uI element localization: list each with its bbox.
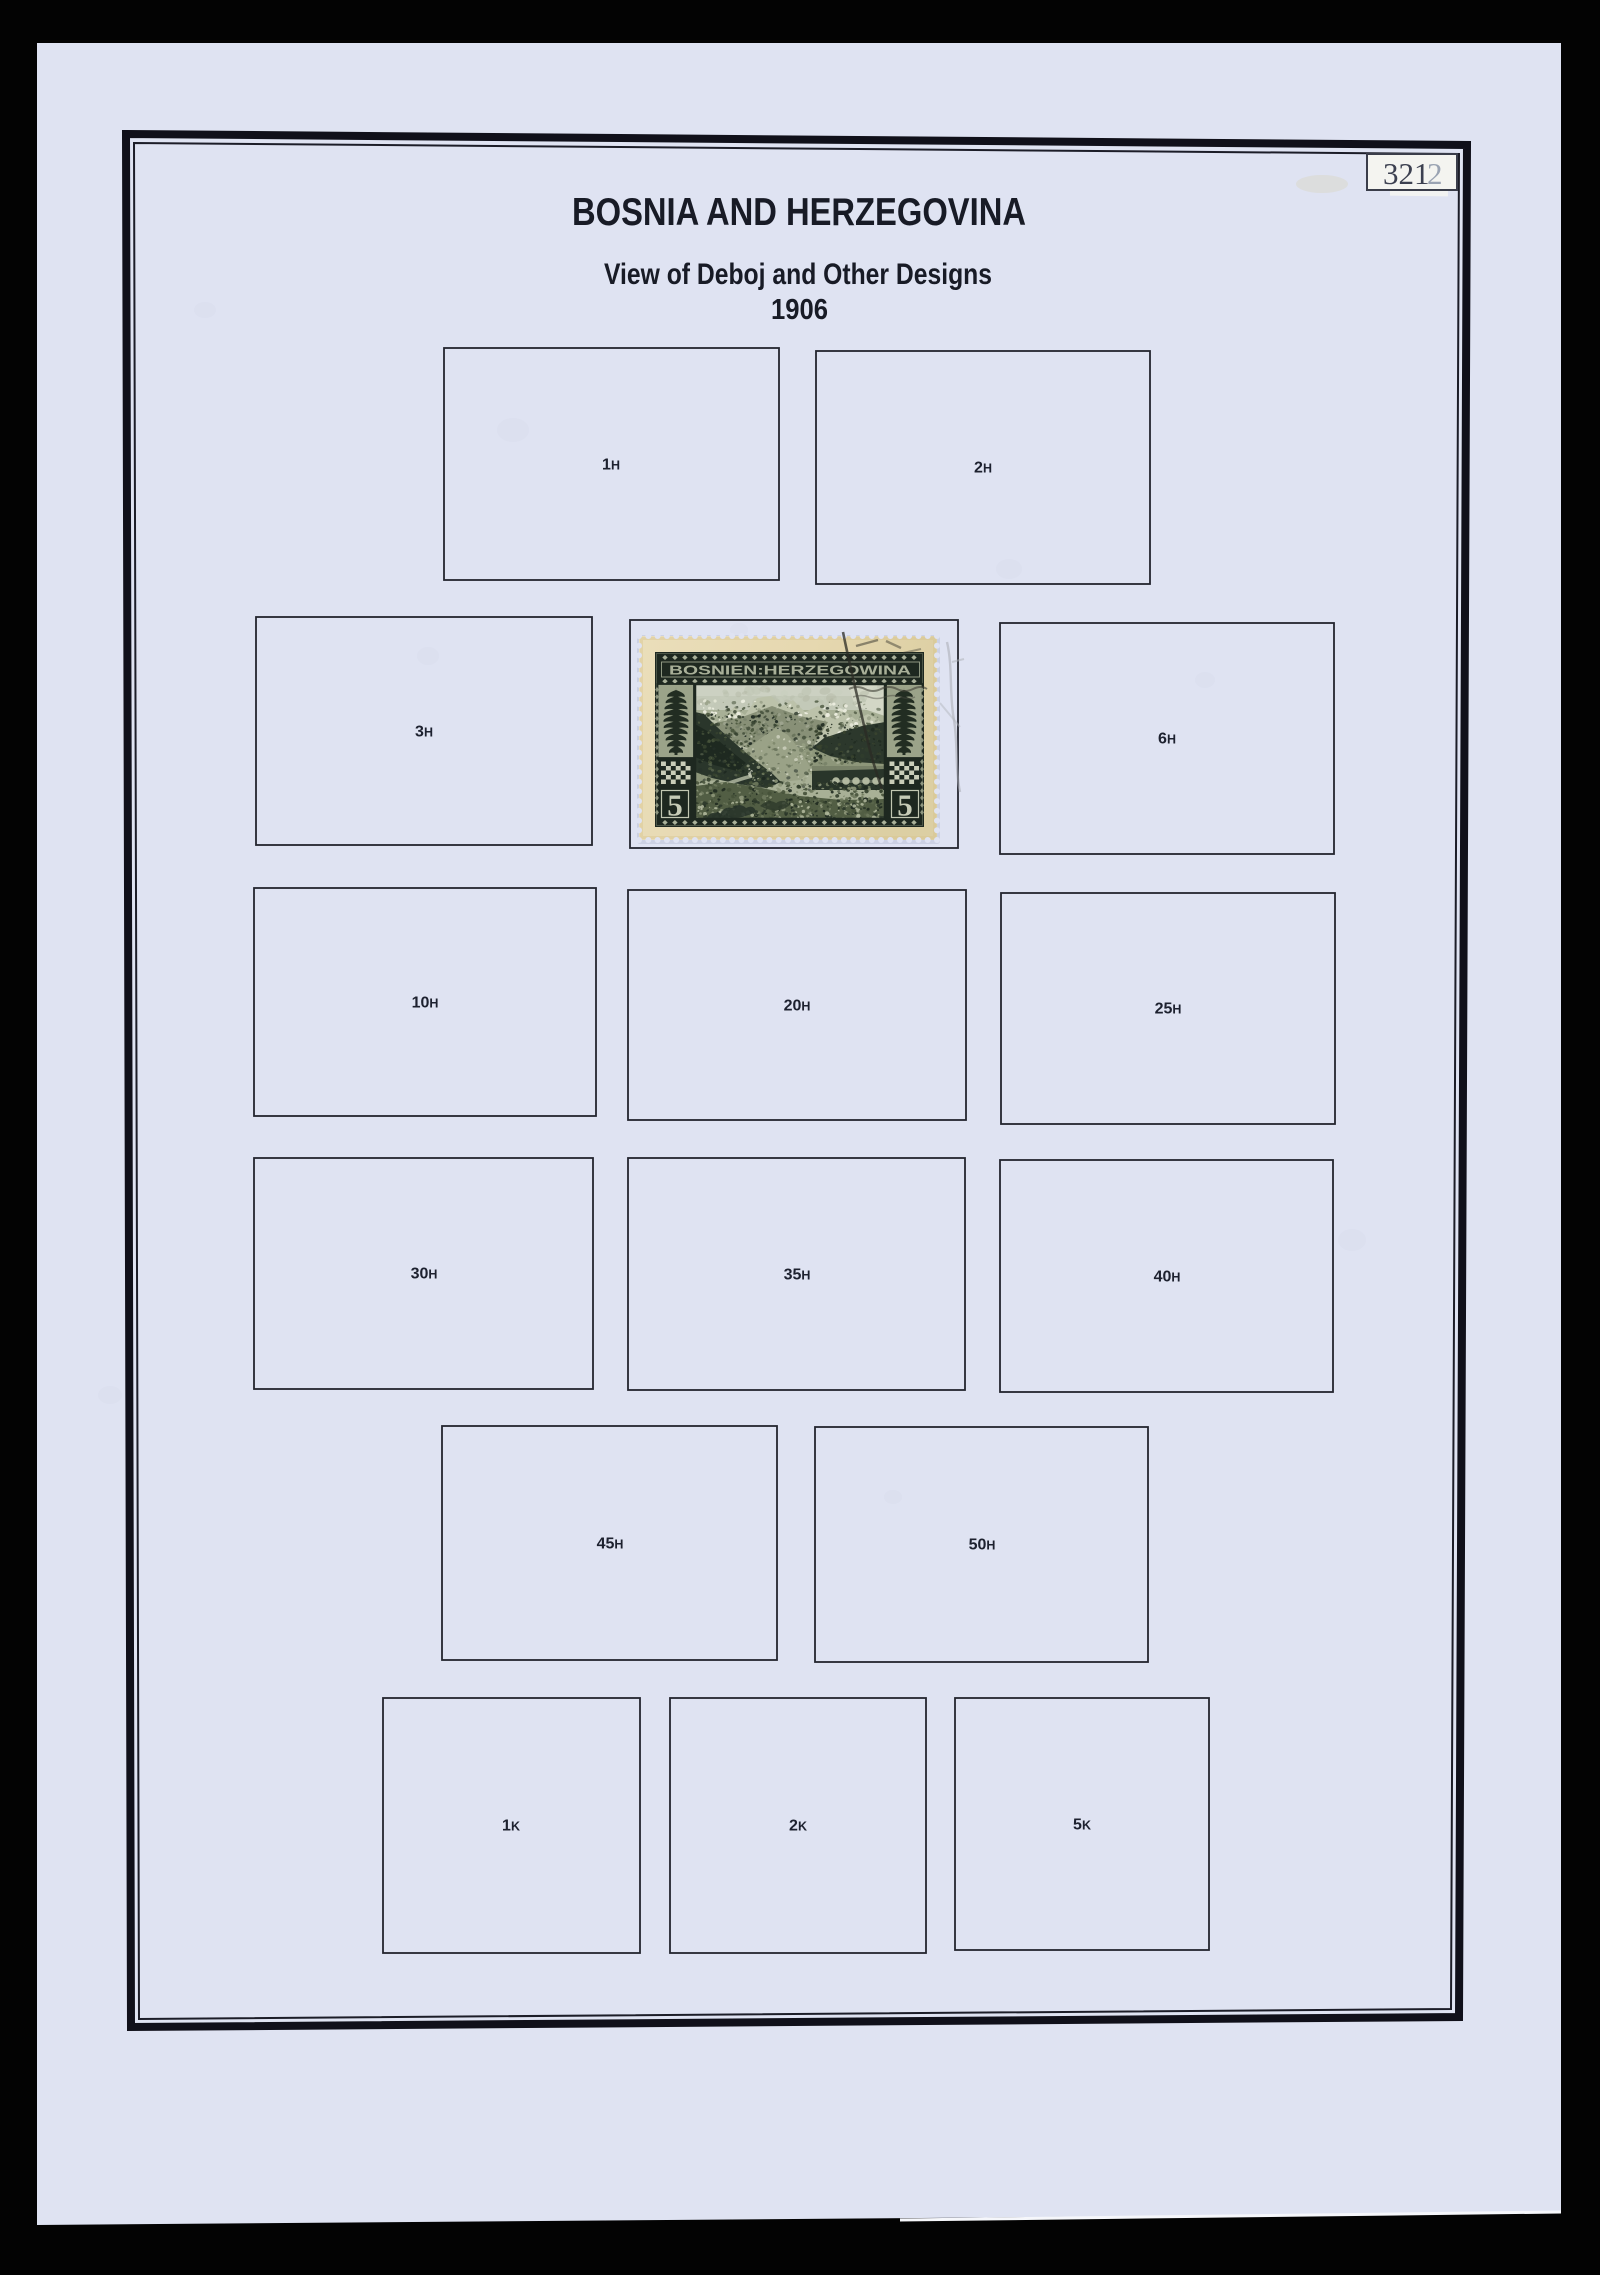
svg-text:35H: 35H (784, 1267, 811, 1284)
svg-text:3H: 3H (415, 724, 433, 741)
svg-text:50H: 50H (969, 1537, 996, 1554)
svg-text:2K: 2K (789, 1818, 807, 1835)
svg-text:45H: 45H (597, 1536, 624, 1553)
svg-text:5K: 5K (1073, 1817, 1091, 1834)
svg-text:10H: 10H (412, 995, 439, 1012)
svg-text:2: 2 (1427, 156, 1443, 191)
svg-text:1906: 1906 (771, 294, 828, 326)
svg-text:5: 5 (897, 788, 913, 823)
svg-text:5: 5 (667, 788, 683, 823)
svg-text:View of Deboj and Other Design: View of Deboj and Other Designs (604, 258, 992, 291)
svg-text:BOSNIA AND HERZEGOVINA: BOSNIA AND HERZEGOVINA (572, 191, 1026, 234)
svg-text:1K: 1K (502, 1818, 520, 1835)
svg-text:BOSNIEN:HERZEGOWINA: BOSNIEN:HERZEGOWINA (669, 663, 912, 678)
svg-text:30H: 30H (411, 1266, 438, 1283)
svg-text:1H: 1H (602, 457, 620, 474)
svg-text:6H: 6H (1158, 731, 1176, 748)
svg-text:2H: 2H (974, 460, 992, 477)
svg-text:25H: 25H (1155, 1001, 1182, 1018)
svg-text:40H: 40H (1154, 1269, 1181, 1286)
svg-text:321: 321 (1383, 156, 1430, 191)
svg-text:20H: 20H (784, 998, 811, 1015)
